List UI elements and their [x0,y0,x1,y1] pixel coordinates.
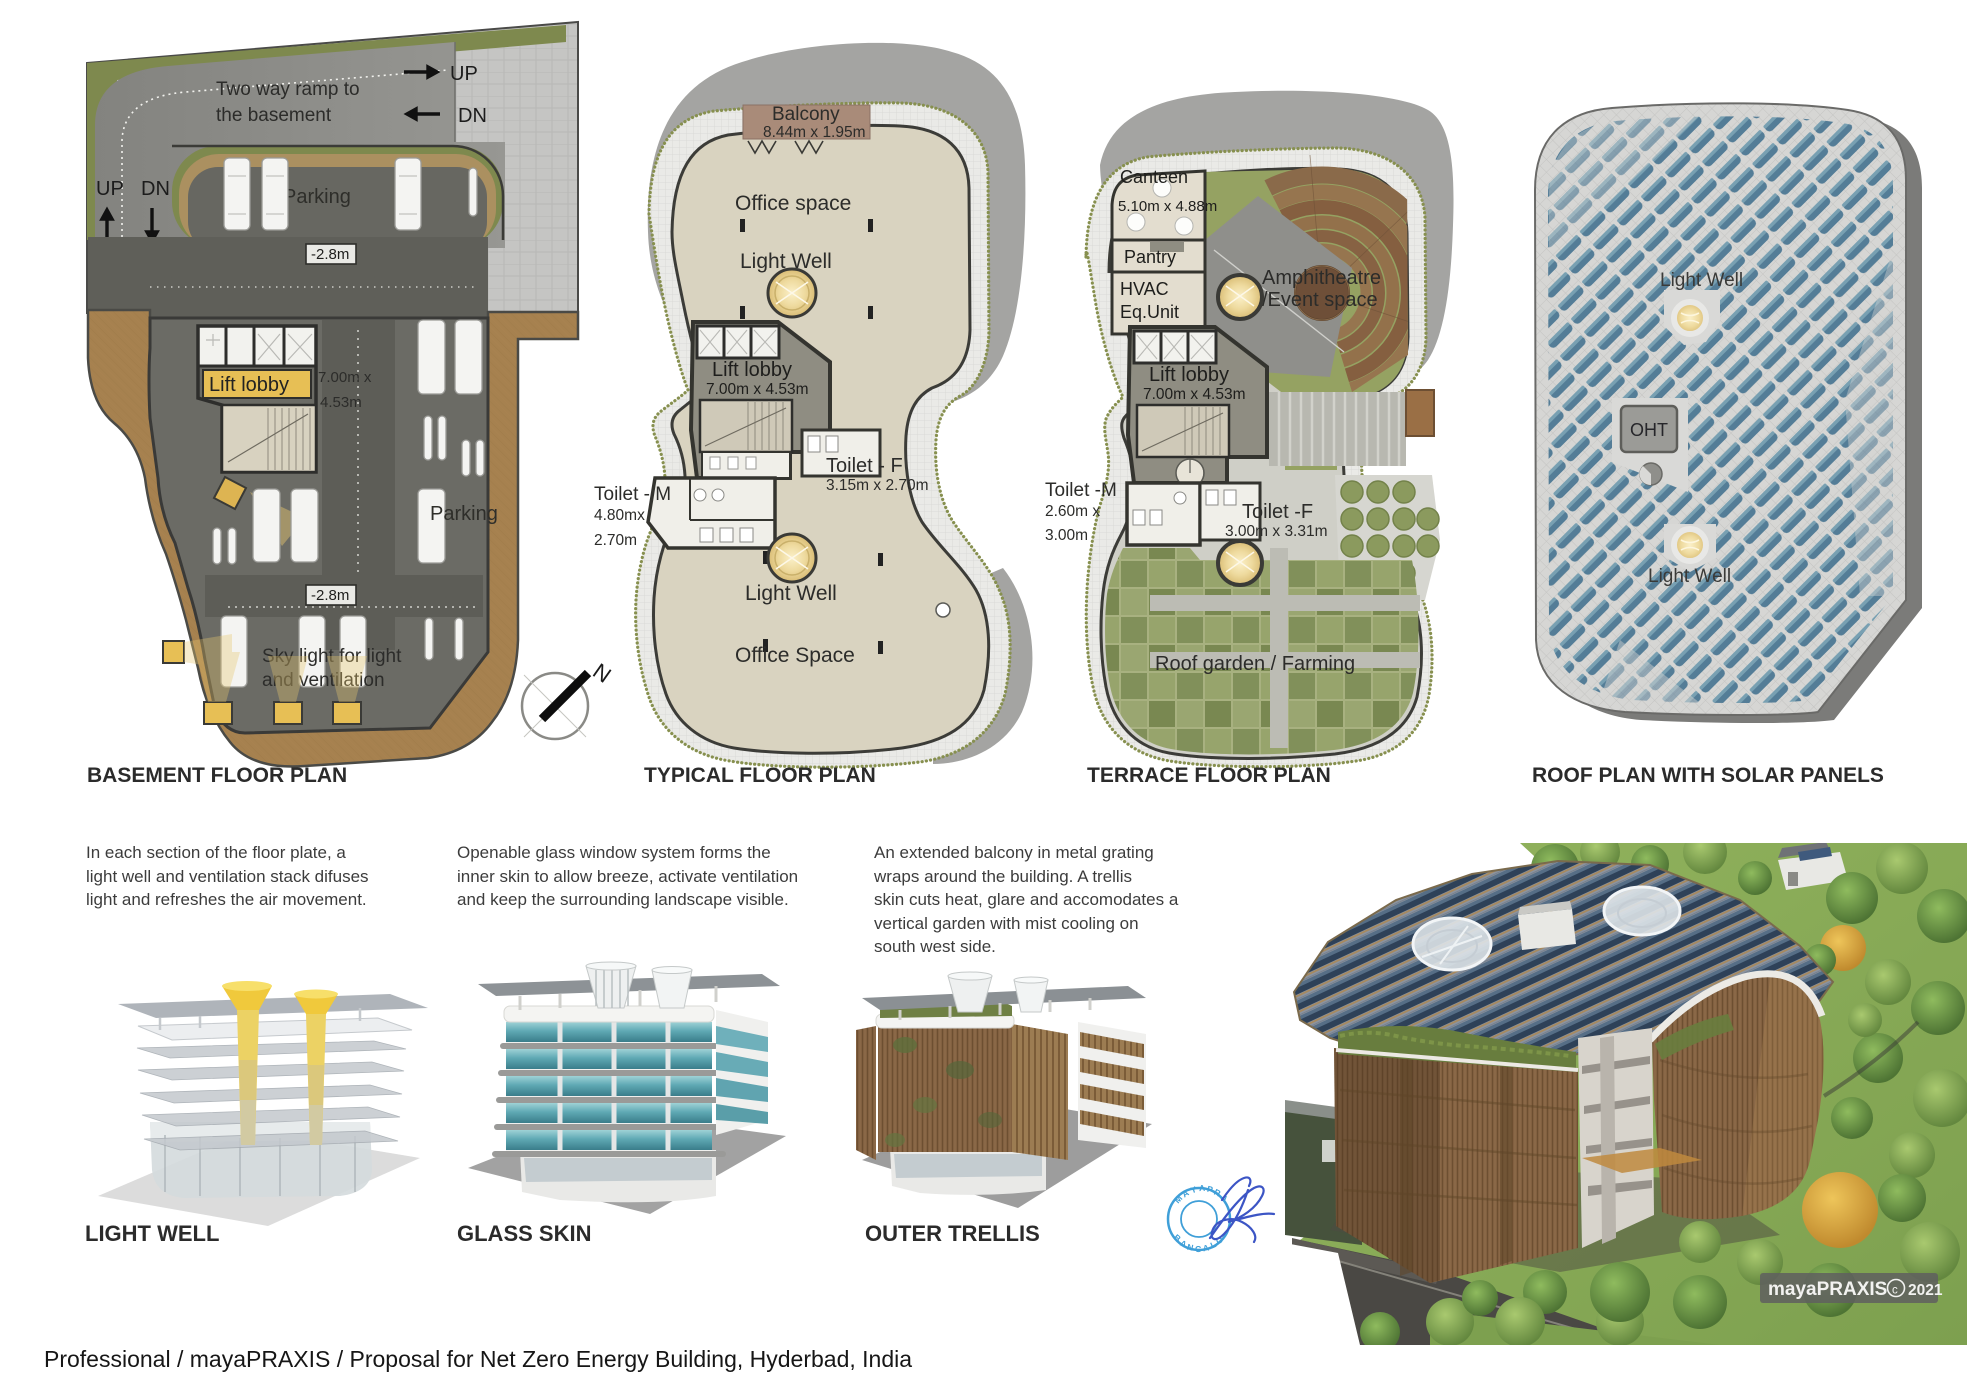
svg-text:3.15m x 2.70m: 3.15m x 2.70m [826,477,929,494]
svg-text:Lift lobby: Lift lobby [712,359,792,381]
svg-text:Balcony: Balcony [772,104,840,125]
svg-text:Eq.Unit: Eq.Unit [1120,302,1179,322]
svg-text:Amphitheatre: Amphitheatre [1262,267,1381,289]
svg-text:DN: DN [458,105,487,127]
svg-text:-2.8m: -2.8m [311,587,349,604]
svg-text:A: A [1202,1242,1210,1253]
svg-text:Toilet - F: Toilet - F [826,455,903,477]
svg-text:Lift lobby: Lift lobby [209,374,289,396]
svg-text:4.53m: 4.53m [320,394,362,411]
svg-text:N: N [588,658,615,688]
svg-text:the basement: the basement [216,105,332,126]
svg-text:Parking: Parking [430,503,498,525]
svg-text:Office Space: Office Space [735,644,855,667]
svg-text:OHT: OHT [1630,420,1668,440]
svg-text:c: c [1892,1285,1898,1297]
svg-text:DN: DN [141,178,170,200]
svg-text:Lift lobby: Lift lobby [1149,364,1229,386]
svg-text:A: A [1199,1183,1206,1193]
svg-text:3.00m: 3.00m [1045,527,1088,544]
svg-text:2.60m x: 2.60m x [1045,503,1100,520]
svg-text:Canteen: Canteen [1120,167,1188,187]
svg-text:Two way ramp to: Two way ramp to [216,79,360,100]
svg-text:UP: UP [450,63,478,85]
svg-text:7.00m x: 7.00m x [318,369,372,386]
svg-text:G: G [1195,1244,1202,1254]
svg-text:5.10m x 4.88m: 5.10m x 4.88m [1118,198,1217,215]
svg-text:Light Well: Light Well [745,582,837,605]
svg-text:Toilet -M: Toilet -M [1045,480,1117,501]
svg-text:7.00m x 4.53m: 7.00m x 4.53m [1143,386,1246,403]
svg-text:2.70m: 2.70m [594,532,637,549]
svg-text:Y: Y [1189,1184,1198,1195]
svg-text:Office space: Office space [735,192,851,215]
svg-text:mayaPRAXIS: mayaPRAXIS [1768,1279,1887,1300]
svg-text:N: N [1186,1242,1194,1253]
svg-text:Toilet - M: Toilet - M [594,484,671,505]
svg-text:Light Well: Light Well [1648,566,1731,587]
svg-text:Light Well: Light Well [1660,270,1743,291]
svg-text:/Event space: /Event space [1262,289,1378,311]
svg-text:7.00m x 4.53m: 7.00m x 4.53m [706,381,809,398]
svg-text:Parking: Parking [283,186,351,208]
svg-text:Toilet -F: Toilet -F [1242,501,1313,523]
svg-text:UP: UP [96,178,124,200]
svg-text:4.80mx: 4.80mx [594,507,645,524]
svg-text:HVAC: HVAC [1120,279,1169,299]
svg-text:2021: 2021 [1908,1282,1943,1299]
svg-text:3.00m x 3.31m: 3.00m x 3.31m [1225,523,1328,540]
svg-text:8.44m x 1.95m: 8.44m x 1.95m [763,124,866,141]
svg-text:-2.8m: -2.8m [311,246,349,263]
svg-text:Pantry: Pantry [1124,247,1176,267]
svg-text:Roof garden / Farming: Roof garden / Farming [1155,653,1355,675]
